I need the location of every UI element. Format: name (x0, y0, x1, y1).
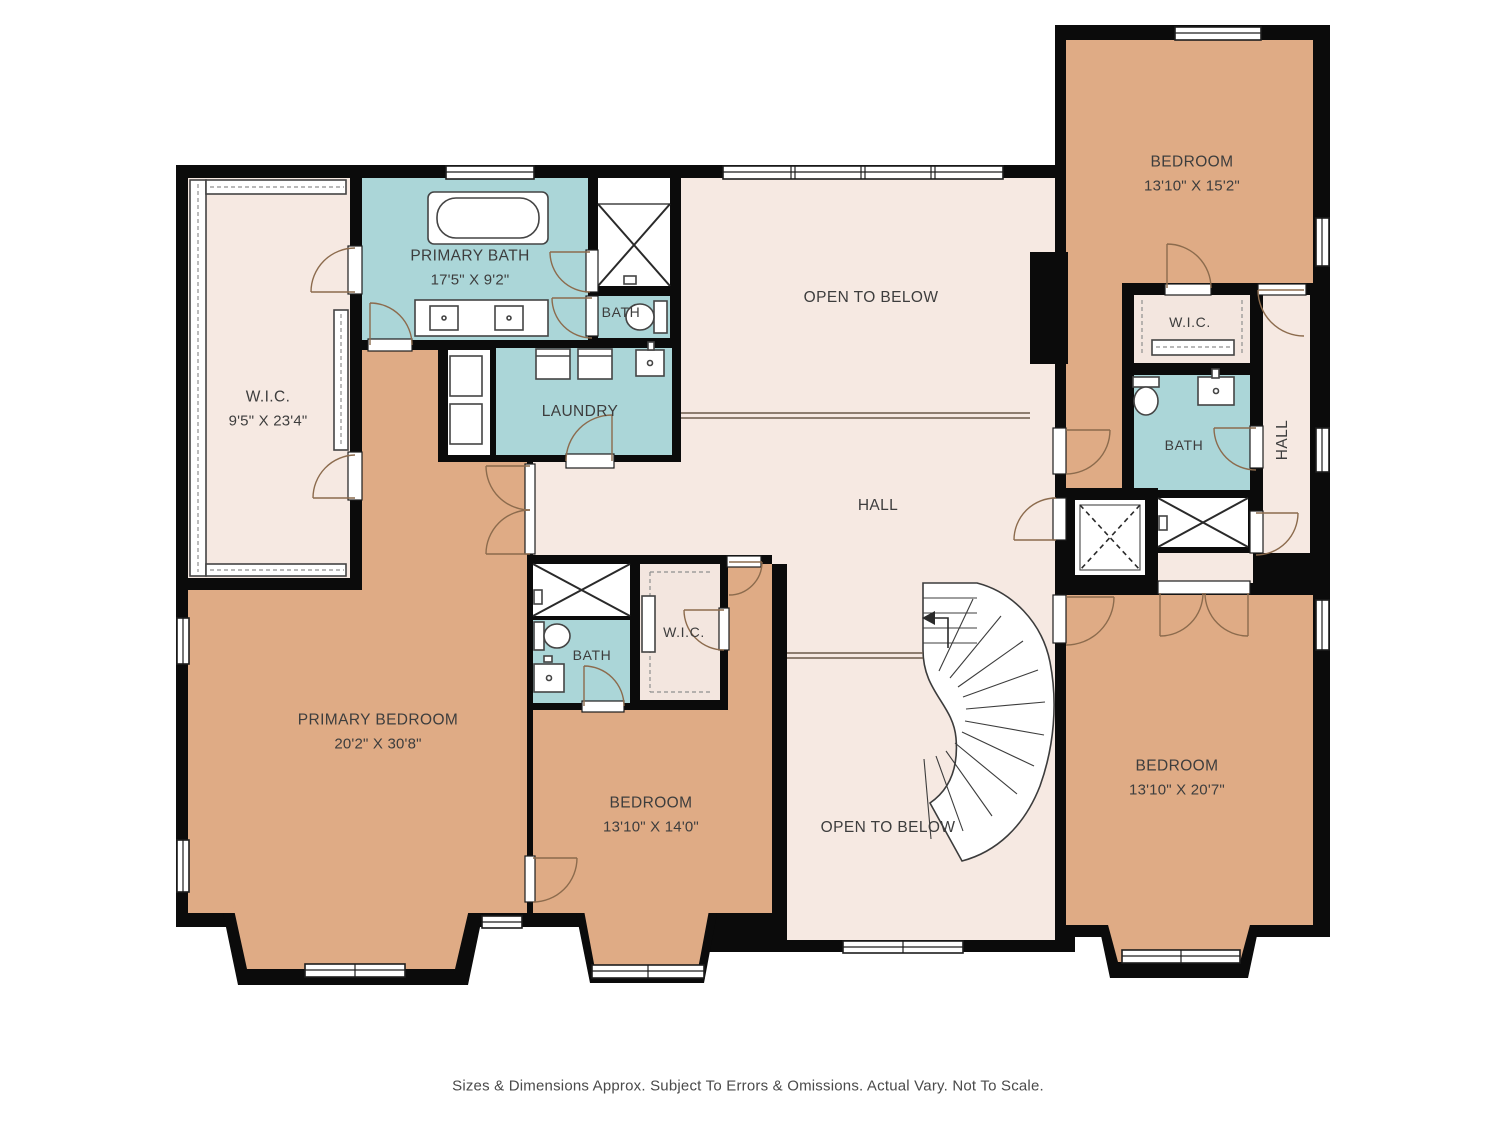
room-label-wic-right: W.I.C. (1169, 312, 1211, 334)
room-label-primary-bedroom: PRIMARY BEDROOM 20'2" X 30'8" (298, 708, 458, 755)
primary-bedroom-bay-floor (233, 905, 470, 969)
chimney-block (1030, 252, 1068, 364)
room-label-open-below-bottom: OPEN TO BELOW (821, 816, 956, 840)
room-label-bath-center: BATH (573, 645, 612, 667)
shower-divider-wall (533, 616, 630, 620)
shaft (1063, 488, 1158, 587)
wic-left-floor (188, 178, 350, 578)
floor-plan-drawing (0, 0, 1500, 1125)
double-vanity-icon (415, 300, 548, 336)
floor-plan-page: PRIMARY BATH 17'5" X 9'2" BATH W.I.C. 9'… (0, 0, 1500, 1125)
room-label-bedroom-bottom-right: BEDROOM 13'10" X 20'7" (1129, 754, 1225, 801)
disclaimer-text: Sizes & Dimensions Approx. Subject To Er… (452, 1078, 1044, 1095)
room-label-open-below-top: OPEN TO BELOW (804, 286, 939, 310)
bedroom-center-bay-floor (583, 905, 710, 969)
room-label-wic-left: W.I.C. 9'5" X 23'4" (229, 385, 308, 432)
room-label-laundry: LAUNDRY (542, 400, 619, 424)
toilet-icon (1133, 377, 1159, 387)
bathtub-icon (428, 192, 548, 244)
primary-shower-floor (598, 178, 670, 286)
toilet-icon (534, 622, 544, 650)
open-below-top-floor (681, 178, 1055, 462)
bedroom-center-nook-floor (728, 564, 772, 710)
room-label-primary-bath: PRIMARY BATH 17'5" X 9'2" (410, 244, 529, 291)
room-label-wic-center: W.I.C. (663, 622, 705, 644)
vestibule-right-floor (1158, 553, 1253, 583)
room-label-hall-right: HALL (1271, 420, 1295, 460)
room-label-hall: HALL (858, 494, 898, 518)
room-label-bedroom-top-right: BEDROOM 13'10" X 15'2" (1144, 150, 1240, 197)
room-label-wc-top: BATH (602, 302, 641, 324)
room-label-bedroom-center: BEDROOM 13'10" X 14'0" (603, 791, 699, 838)
sink-icon (534, 664, 564, 692)
room-label-bath-right: BATH (1165, 435, 1204, 457)
laundry-sink-icon (636, 350, 664, 376)
sink-icon (1198, 377, 1234, 405)
